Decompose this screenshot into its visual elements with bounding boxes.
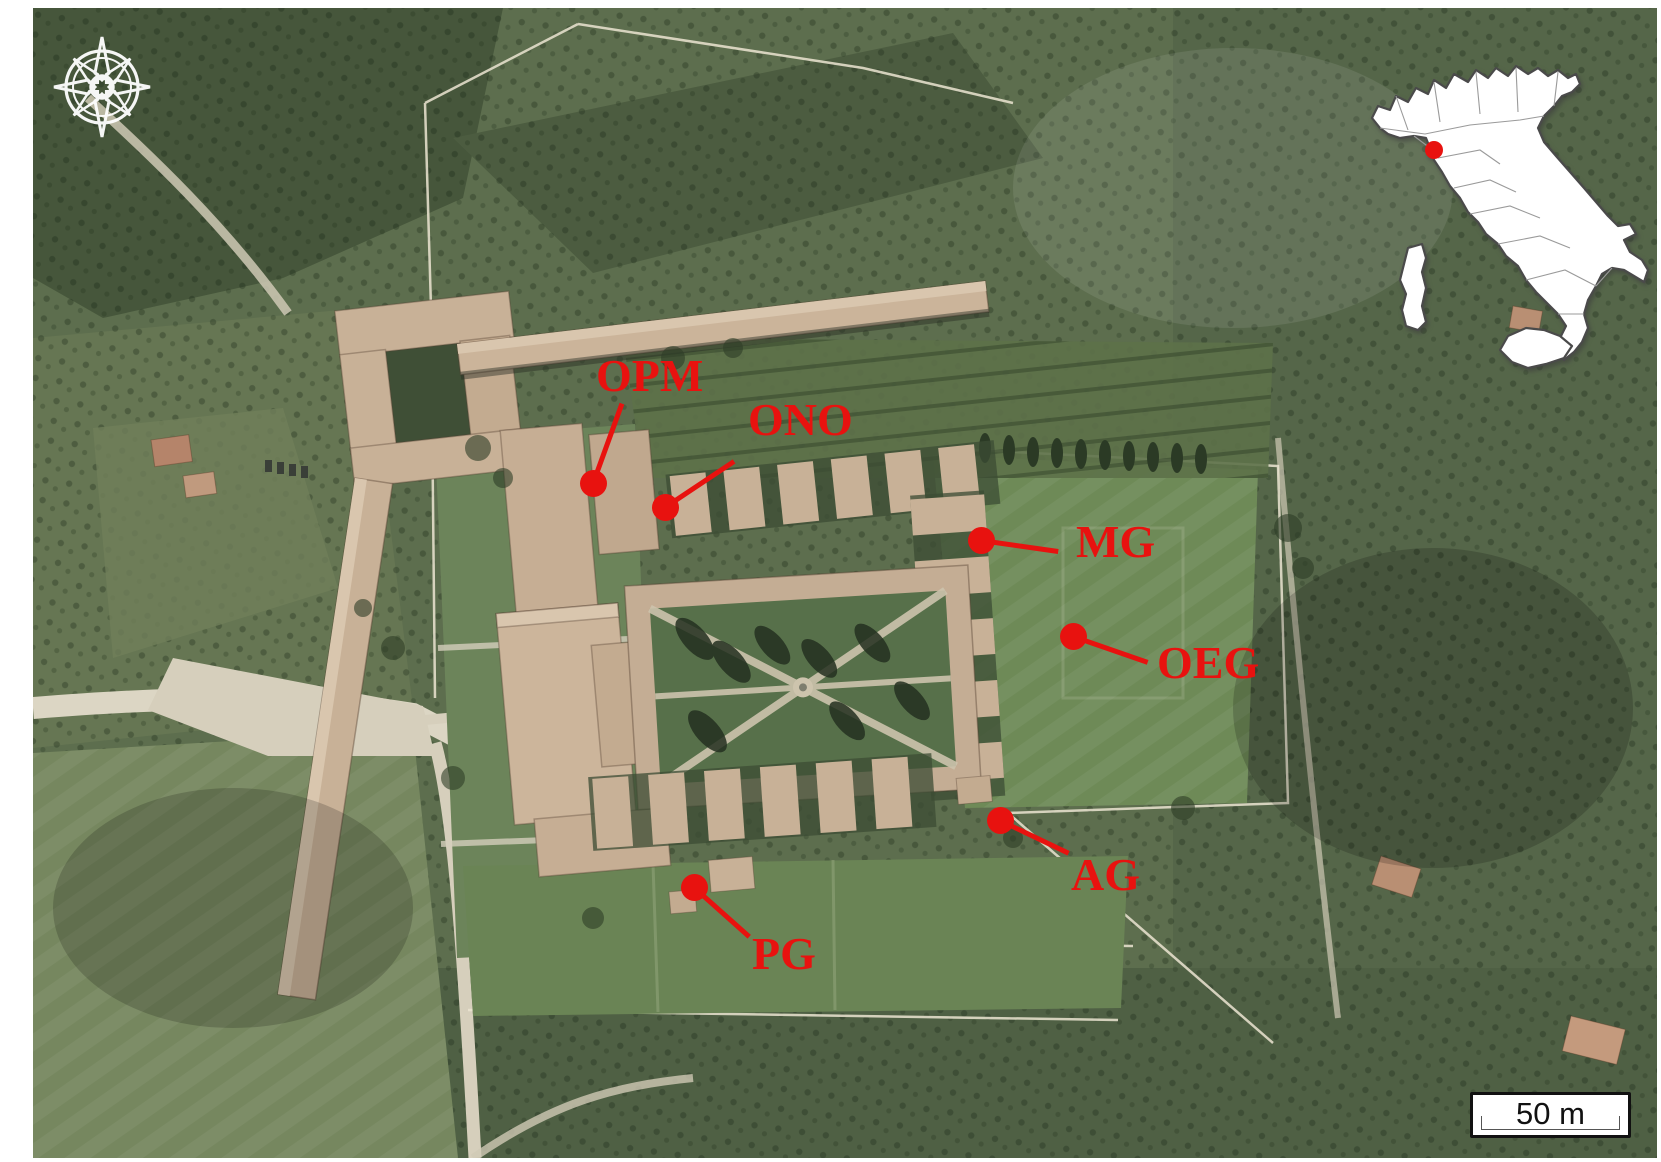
scale-bar: 50 m: [1470, 1092, 1631, 1138]
compass-rose-icon: [52, 30, 156, 144]
scale-bar-bracket: [1481, 1116, 1620, 1130]
italy-locator-map: [1330, 30, 1650, 400]
figure-canvas: 50 m OPMONOMGOEGAGPG: [0, 0, 1661, 1162]
inset-location-dot: [1425, 141, 1443, 159]
